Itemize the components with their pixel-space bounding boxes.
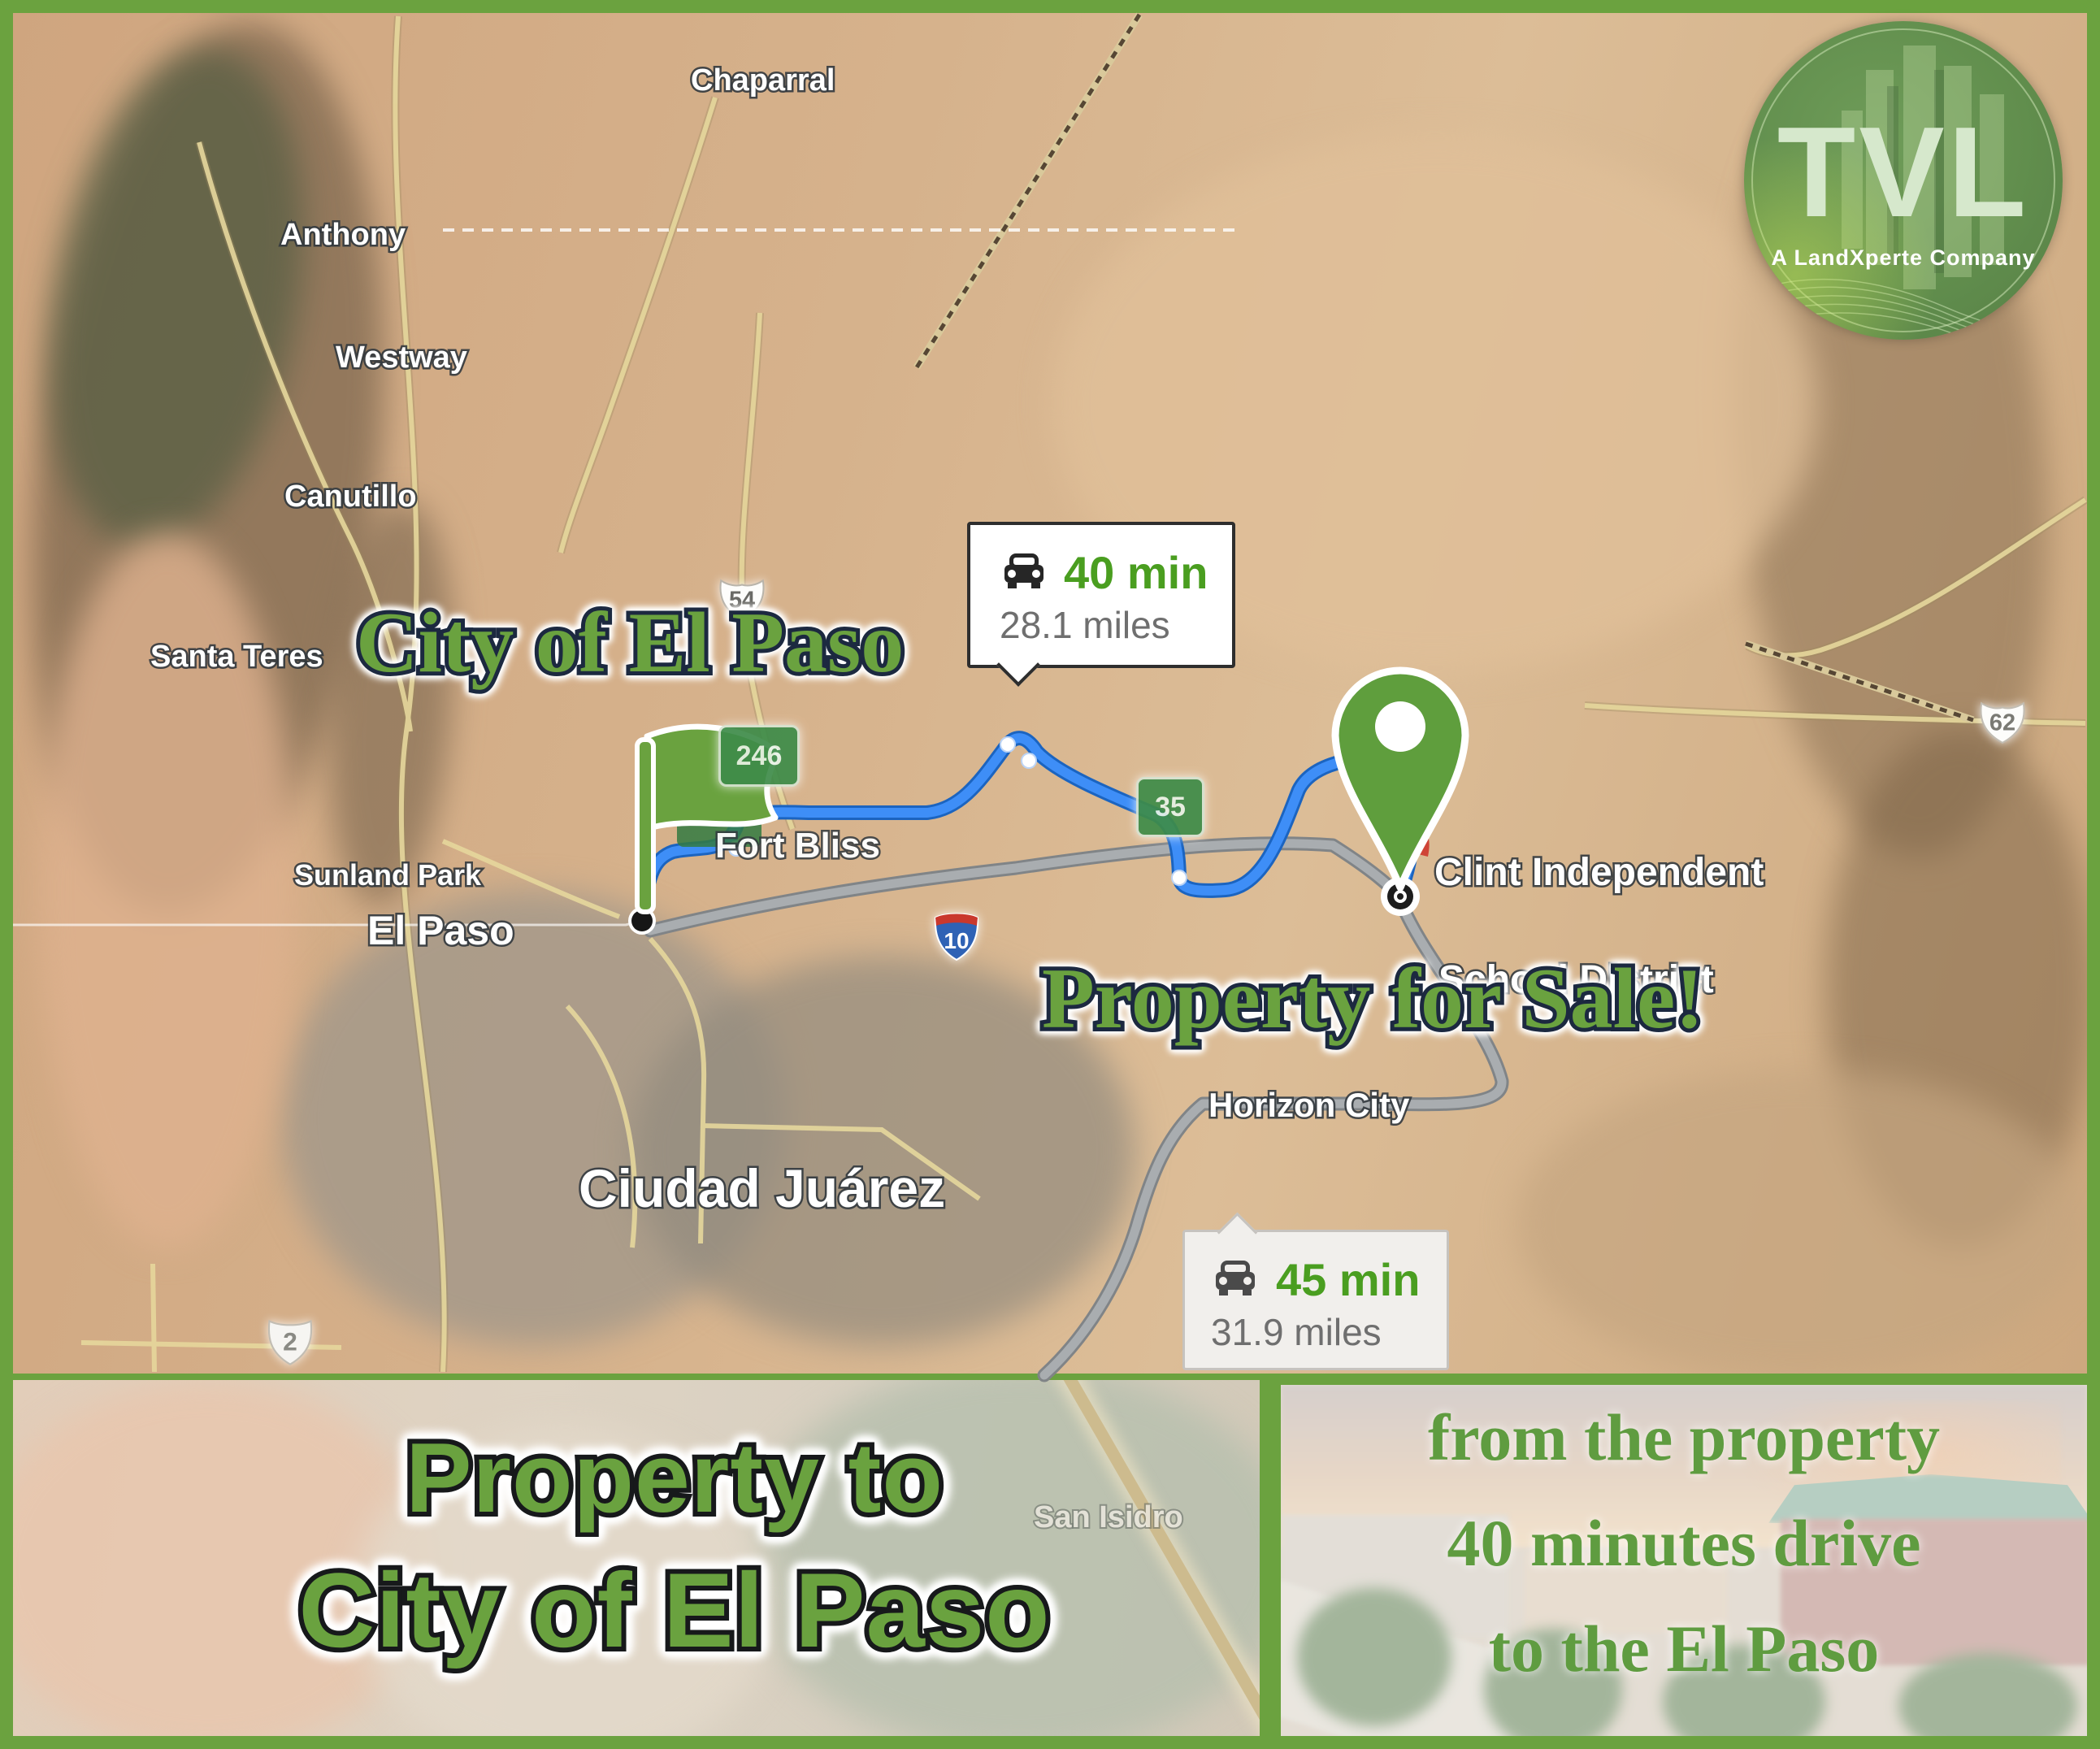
us62-number: 62 <box>1989 710 2015 736</box>
nm246-shield: 246 <box>718 725 800 787</box>
flyer-canvas: Chaparral Anthony Westway Canutillo Sant… <box>0 0 2100 1749</box>
route-badge-40min: 40 min 28.1 miles <box>967 522 1235 668</box>
logo-tagline: A LandXperte Company <box>1744 245 2063 271</box>
car-icon <box>998 546 1050 597</box>
caption-to-the-el-paso: to the El Paso <box>1281 1611 2087 1687</box>
label-ciudad-juarez: Ciudad Juárez <box>579 1157 945 1219</box>
tvl-logo: TVL A LandXperte Company <box>1744 21 2063 340</box>
caption-40-minutes-drive: 40 minutes drive <box>1281 1505 2087 1582</box>
nm246-number: 246 <box>736 740 783 772</box>
label-sunland-park: Sunland Park <box>294 858 481 892</box>
label-anthony: Anthony <box>280 218 406 253</box>
nm35-number: 35 <box>1155 792 1186 823</box>
us62-shield: 62 <box>1972 696 2033 750</box>
label-el-paso: El Paso <box>367 907 514 954</box>
label-canutillo: Canutillo <box>284 480 417 514</box>
route-badge-45min: 45 min 31.9 miles <box>1182 1230 1449 1370</box>
label-clint-isd-line1: Clint Independent <box>1434 850 1764 895</box>
mx2-number: 2 <box>283 1327 297 1356</box>
label-chaparral: Chaparral <box>691 63 835 98</box>
car-icon <box>1209 1253 1261 1304</box>
logo-text: TVL <box>1744 99 2063 246</box>
label-horizon-city: Horizon City <box>1208 1086 1409 1125</box>
mx2-shield: 2 <box>262 1314 318 1372</box>
el-paso-photo-panel: from the property 40 minutes drive to th… <box>1281 1385 2087 1736</box>
label-santa-teresa: Santa Teres <box>150 640 323 675</box>
badge-distance: 31.9 miles <box>1211 1310 1382 1354</box>
label-san-isidro: San Isidro <box>1034 1500 1183 1535</box>
badge-time: 40 min <box>1064 546 1208 599</box>
i10-number: 10 <box>944 928 969 953</box>
property-for-sale-title: Property for Sale! <box>1042 949 1703 1048</box>
badge-time: 45 min <box>1276 1253 1420 1306</box>
badge-distance: 28.1 miles <box>1000 603 1170 647</box>
city-of-el-paso-title: City of El Paso <box>356 593 904 692</box>
caption-city-of-el-paso: City of El Paso <box>268 1549 1081 1671</box>
nm35-shield: 35 <box>1136 777 1204 837</box>
caption-property-to: Property to <box>309 1421 1040 1534</box>
i10-shield: 10 <box>931 904 983 970</box>
terrain-desert-south <box>1516 1070 2085 1374</box>
label-fort-bliss: Fort Bliss <box>715 826 880 866</box>
caption-from-the-property: from the property <box>1281 1400 2087 1476</box>
label-westway: Westway <box>336 341 467 375</box>
